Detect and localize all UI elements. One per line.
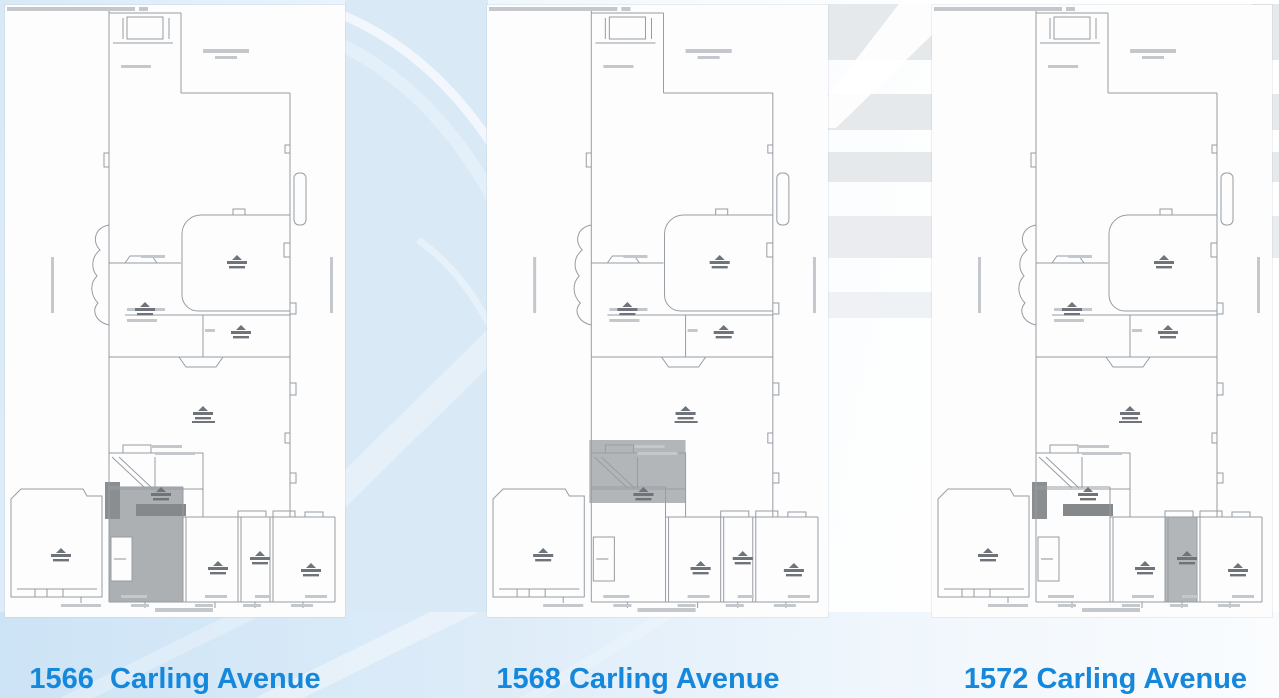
- survey-stamp-mark: [1062, 302, 1082, 315]
- survey-stamp-mark: [301, 563, 321, 576]
- unit-highlight: [1063, 504, 1113, 516]
- survey-stamp-mark: [208, 561, 228, 574]
- survey-stamp-mark: [1135, 561, 1155, 574]
- address-caption-1566: 1566 Carling Avenue: [5, 661, 345, 697]
- survey-stamp-mark: [617, 302, 637, 315]
- survey-stamp-mark: [533, 548, 553, 561]
- survey-stamp-mark: [192, 406, 215, 423]
- floorplan-panel-1568: [487, 5, 828, 617]
- survey-stamp-mark: [231, 325, 251, 338]
- unit-highlight: [136, 504, 186, 516]
- survey-stamp-mark: [733, 551, 753, 564]
- survey-stamp-mark: [51, 548, 71, 561]
- address-caption-1568: 1568 Carling Avenue: [468, 661, 808, 697]
- unit-highlight: [105, 482, 120, 519]
- survey-stamp-mark: [227, 255, 247, 268]
- survey-stamp-mark: [1119, 406, 1142, 423]
- survey-stamp-mark: [675, 406, 698, 423]
- survey-stamp-mark: [691, 561, 711, 574]
- floorplan-scan-1572: [932, 5, 1272, 617]
- unit-highlight: [1032, 482, 1047, 519]
- survey-stamp-mark: [710, 255, 730, 268]
- survey-stamp-mark: [978, 548, 998, 561]
- survey-stamp-mark: [1158, 325, 1178, 338]
- slide-canvas: 1566 Carling Avenue 1568 Carling Avenue …: [0, 0, 1279, 698]
- survey-stamp-mark: [714, 325, 734, 338]
- survey-stamp-mark: [250, 551, 270, 564]
- survey-stamp-mark: [1228, 563, 1248, 576]
- floorplan-scan-1568: [487, 5, 828, 617]
- floorplan-panel-1572: [932, 5, 1272, 617]
- floorplan-panel-1566: [5, 5, 345, 617]
- address-caption-1572: 1572 Carling Avenue: [932, 661, 1279, 697]
- survey-stamp-mark: [784, 563, 804, 576]
- survey-stamp-mark: [135, 302, 155, 315]
- floorplan-scan-1566: [5, 5, 345, 617]
- survey-stamp-mark: [1154, 255, 1174, 268]
